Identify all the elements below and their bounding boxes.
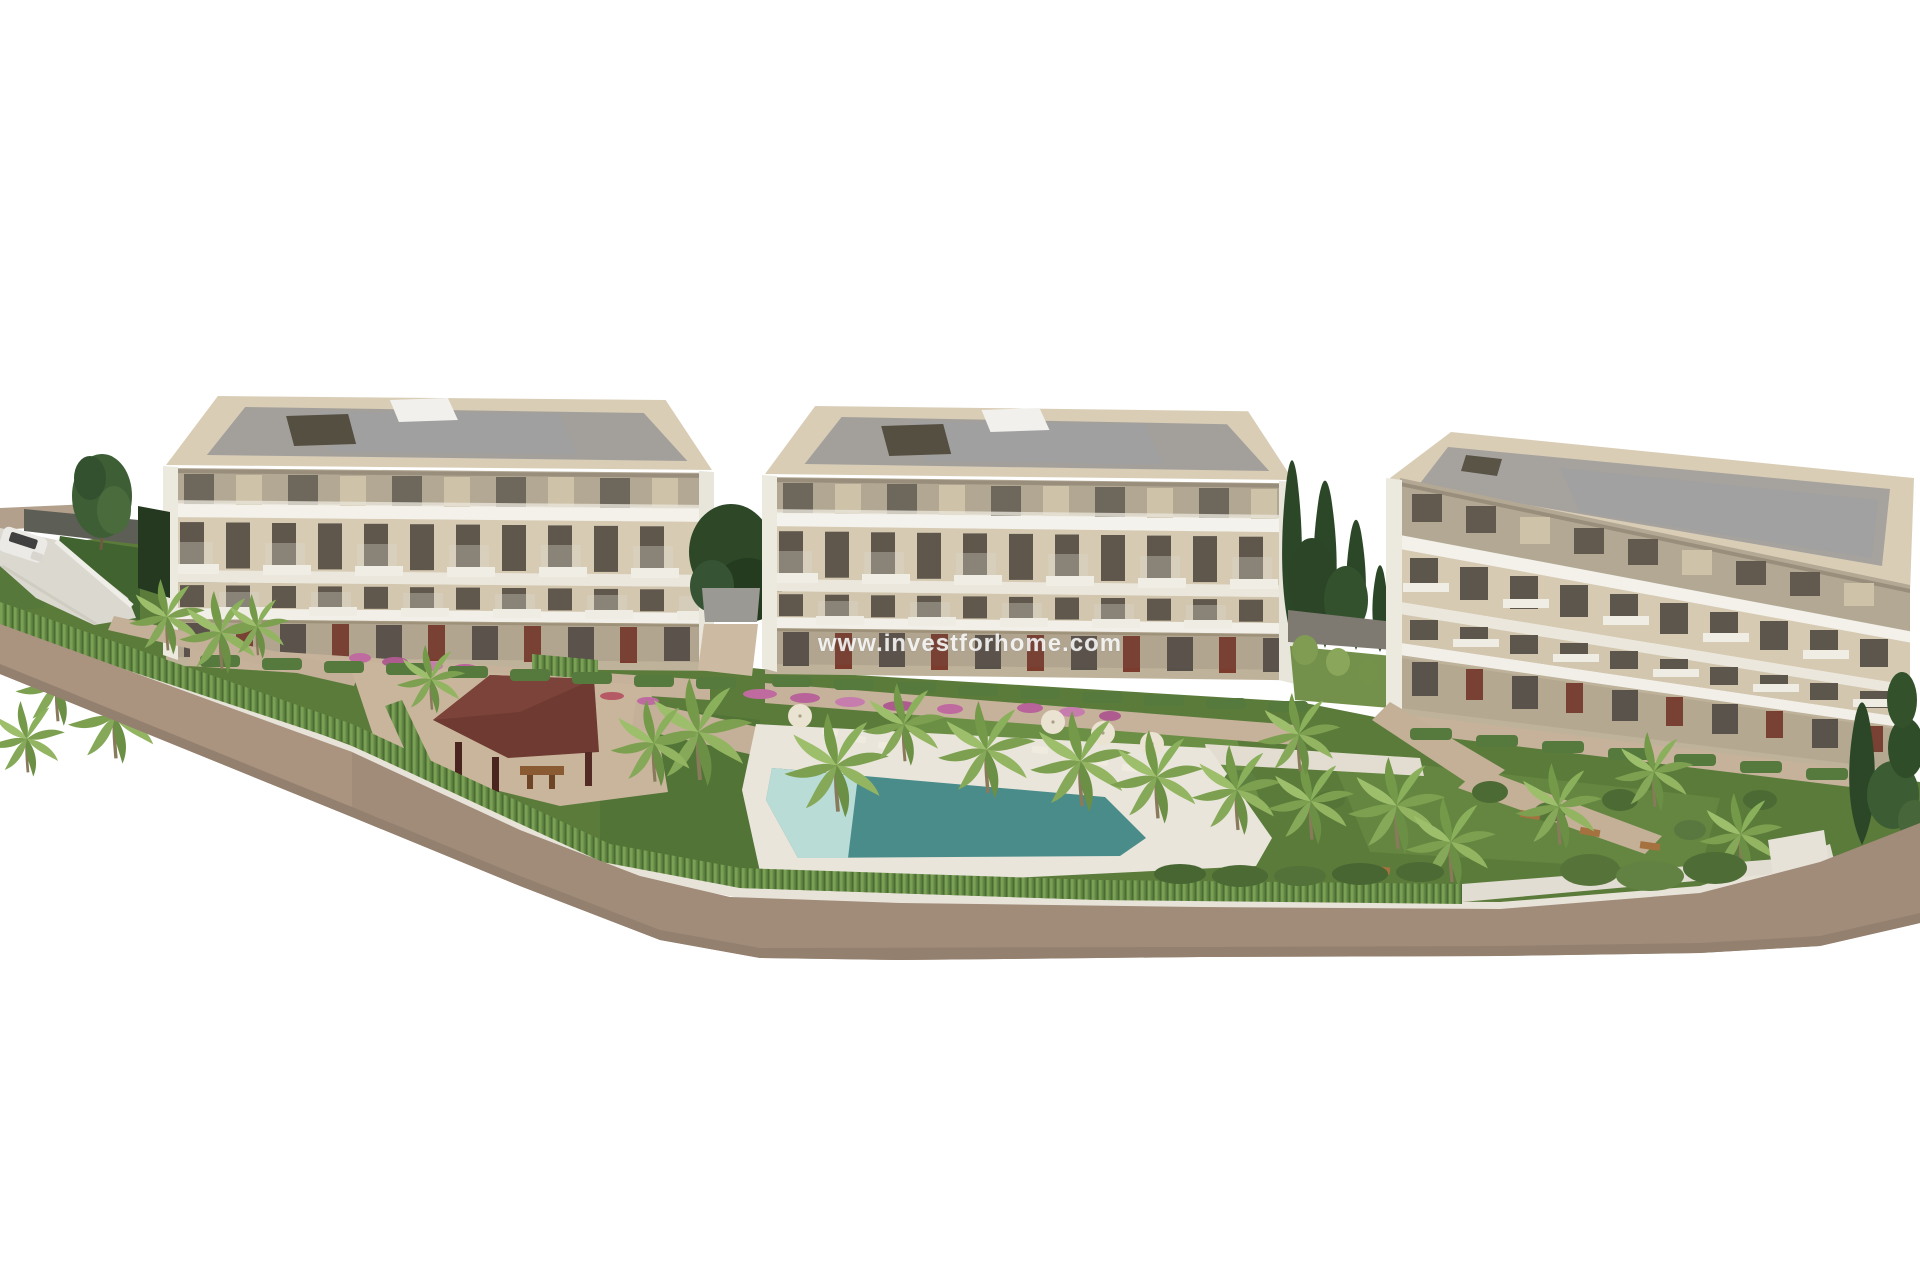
svg-text:www.investforhome.com: www.investforhome.com	[817, 630, 1122, 657]
